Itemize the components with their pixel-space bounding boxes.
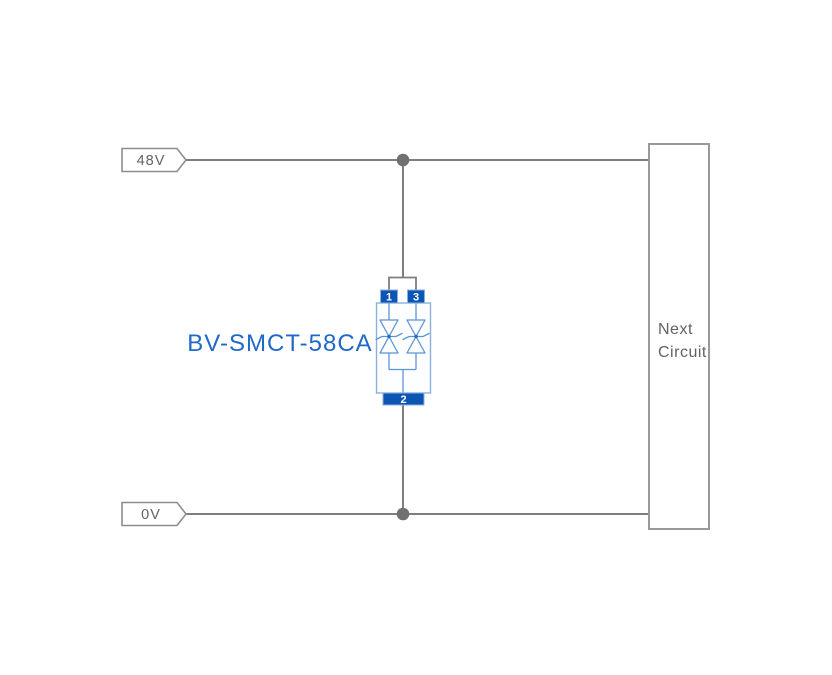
junction-dot-bottom bbox=[397, 508, 410, 521]
tvs-diode-component: 1 3 2 bbox=[376, 290, 431, 406]
pin-2-label: 2 bbox=[400, 394, 406, 406]
circuit-diagram-canvas: 48V 0V Next Circuit bbox=[0, 0, 832, 675]
part-number-label: BV-SMCT-58CA bbox=[187, 330, 372, 357]
next-circuit-label-line1: Next bbox=[658, 321, 693, 338]
pin-1-label: 1 bbox=[386, 292, 392, 304]
pin-3-label: 3 bbox=[413, 292, 419, 304]
next-circuit-label-line2: Circuit bbox=[658, 344, 707, 361]
net-label-0v: 0V bbox=[141, 507, 161, 523]
circuit-schematic: 48V 0V Next Circuit bbox=[0, 0, 832, 675]
junction-dot-top bbox=[397, 154, 410, 167]
net-label-48v: 48V bbox=[137, 153, 166, 169]
wire-pin-bracket bbox=[389, 278, 416, 291]
